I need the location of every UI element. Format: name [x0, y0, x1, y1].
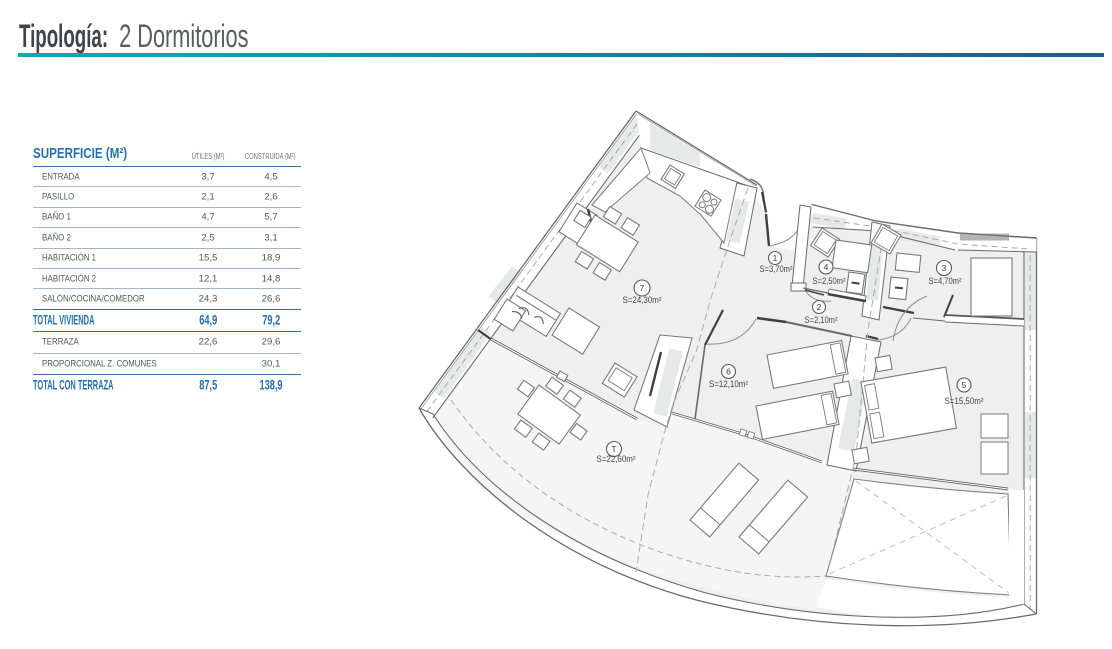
svg-text:S=2,10m²: S=2,10m²	[805, 315, 838, 325]
svg-text:1: 1	[773, 253, 778, 263]
svg-text:S=2,50m²: S=2,50m²	[813, 276, 846, 286]
svg-text:S=24,30m²: S=24,30m²	[623, 295, 662, 305]
svg-text:3: 3	[942, 263, 947, 273]
svg-text:7: 7	[640, 283, 645, 293]
svg-text:S=3,70m²: S=3,70m²	[760, 264, 793, 274]
svg-text:4: 4	[824, 262, 829, 272]
svg-text:S=12,10m²: S=12,10m²	[709, 379, 748, 389]
svg-text:T: T	[611, 444, 616, 454]
svg-text:2: 2	[817, 302, 822, 312]
svg-text:6: 6	[726, 367, 731, 377]
svg-text:S=4,70m²: S=4,70m²	[929, 276, 962, 286]
svg-text:5: 5	[962, 380, 967, 390]
svg-text:S=15,50m²: S=15,50m²	[945, 396, 984, 406]
svg-text:S=22,60m²: S=22,60m²	[597, 454, 636, 464]
